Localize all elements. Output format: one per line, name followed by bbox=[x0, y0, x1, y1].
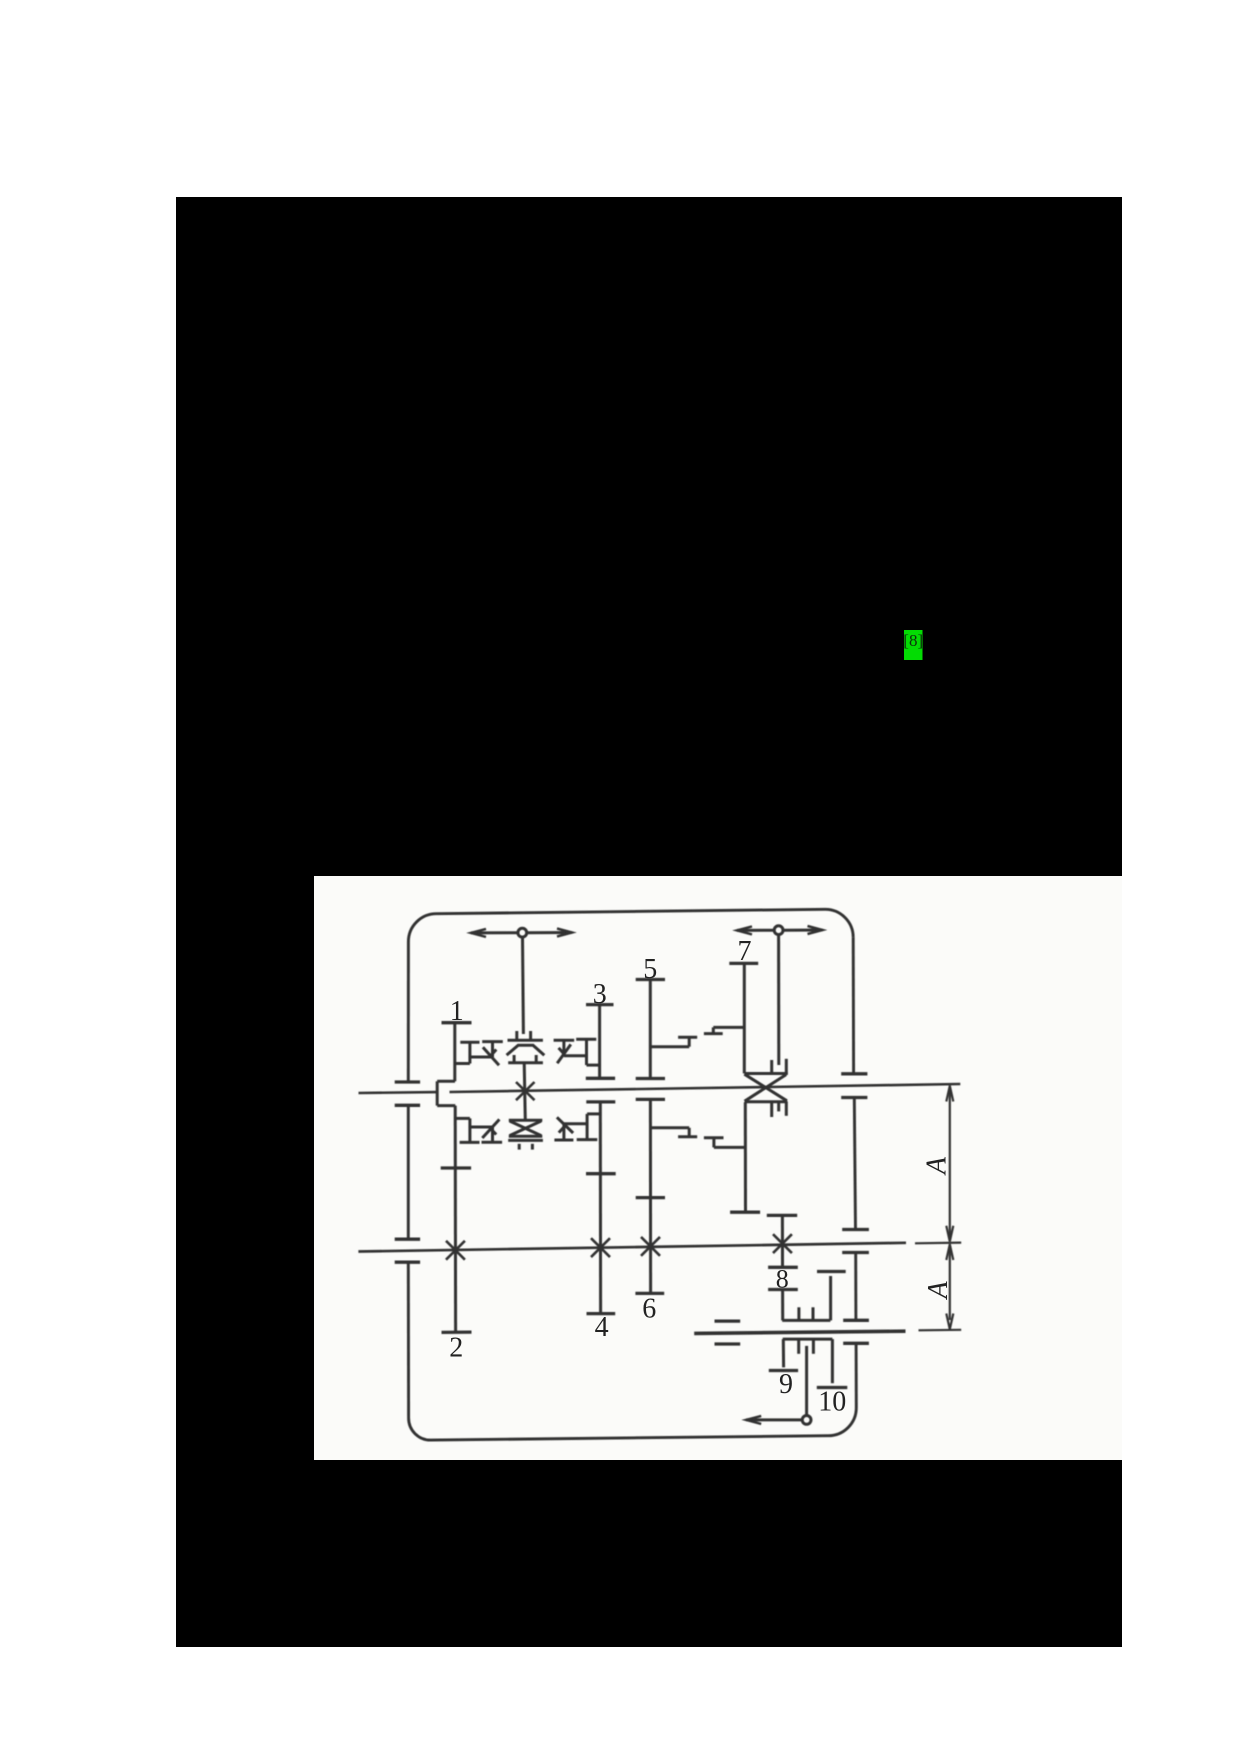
svg-text:9: 9 bbox=[779, 1369, 793, 1400]
svg-text:A: A bbox=[923, 1280, 954, 1300]
svg-text:8: 8 bbox=[776, 1265, 789, 1294]
svg-text:10: 10 bbox=[818, 1387, 846, 1418]
svg-text:[8]: [8] bbox=[903, 631, 923, 650]
svg-text:4: 4 bbox=[595, 1312, 609, 1343]
svg-text:6: 6 bbox=[642, 1294, 656, 1325]
svg-text:1: 1 bbox=[450, 996, 464, 1027]
svg-text:A: A bbox=[922, 1156, 953, 1176]
svg-text:3: 3 bbox=[593, 979, 607, 1010]
svg-text:2: 2 bbox=[449, 1332, 463, 1363]
svg-text:5: 5 bbox=[643, 954, 657, 985]
svg-text:7: 7 bbox=[738, 936, 752, 967]
